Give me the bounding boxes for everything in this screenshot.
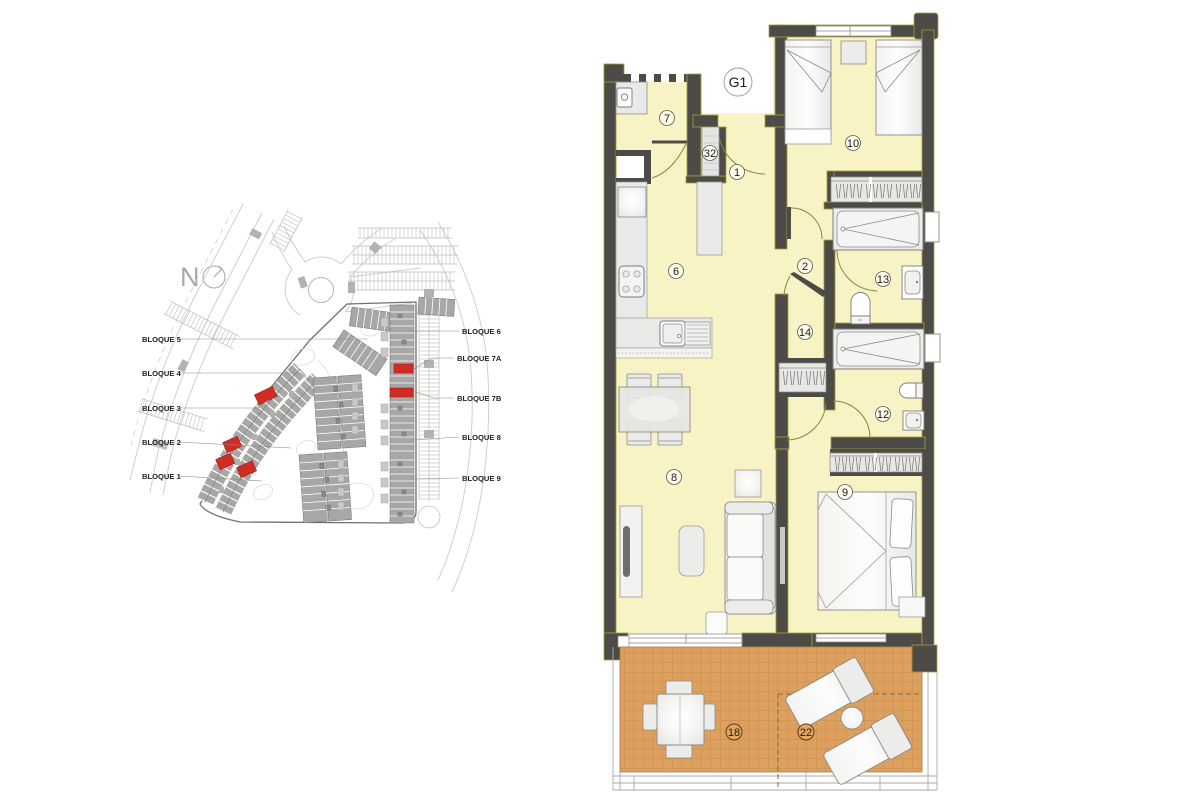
svg-text:BLOQUE 3: BLOQUE 3	[142, 404, 181, 413]
svg-text:10: 10	[847, 138, 859, 150]
svg-text:7: 7	[664, 113, 670, 125]
svg-text:12: 12	[877, 409, 889, 421]
svg-text:BLOQUE 4: BLOQUE 4	[142, 369, 182, 378]
svg-text:BLOQUE 7B: BLOQUE 7B	[457, 394, 502, 403]
svg-text:6: 6	[673, 266, 679, 278]
svg-text:18: 18	[728, 727, 740, 739]
svg-text:BLOQUE 6: BLOQUE 6	[462, 327, 501, 336]
svg-text:N: N	[180, 262, 200, 292]
svg-text:14: 14	[799, 327, 811, 339]
svg-text:BLOQUE 2: BLOQUE 2	[142, 438, 181, 447]
svg-text:1: 1	[734, 167, 740, 179]
svg-text:13: 13	[877, 274, 889, 286]
svg-text:BLOQUE 1: BLOQUE 1	[142, 472, 182, 481]
svg-text:9: 9	[842, 487, 848, 499]
svg-text:8: 8	[671, 472, 677, 484]
svg-text:BLOQUE 7A: BLOQUE 7A	[457, 354, 502, 363]
svg-text:32: 32	[704, 148, 716, 160]
svg-text:BLOQUE 9: BLOQUE 9	[462, 474, 501, 483]
svg-text:G1: G1	[729, 74, 748, 90]
svg-text:BLOQUE 8: BLOQUE 8	[462, 433, 501, 442]
svg-text:22: 22	[800, 727, 812, 739]
svg-text:BLOQUE 5: BLOQUE 5	[142, 335, 182, 344]
svg-text:2: 2	[802, 261, 808, 273]
